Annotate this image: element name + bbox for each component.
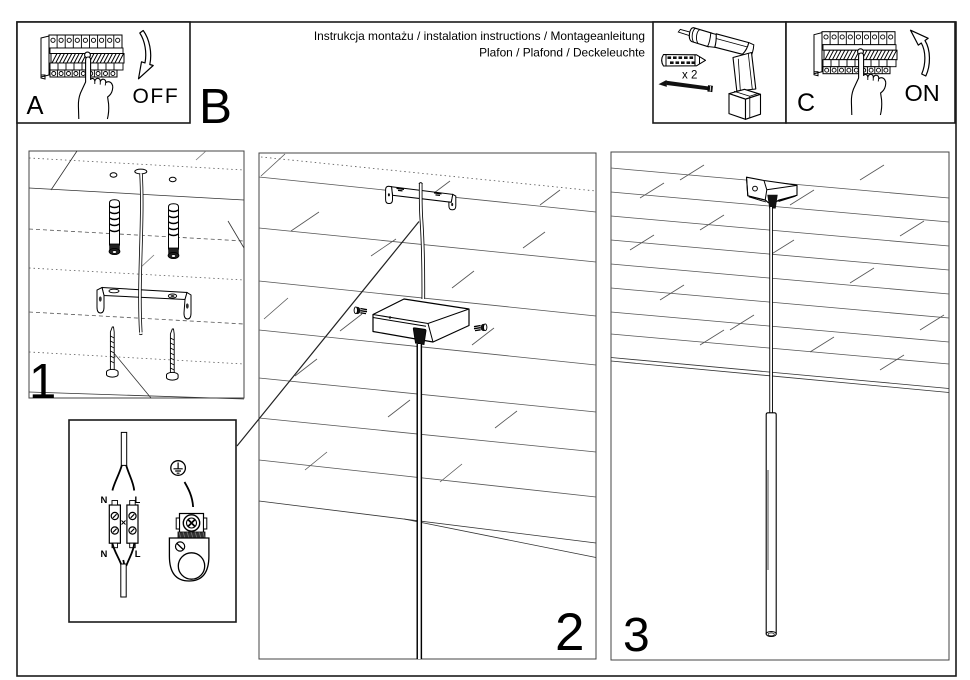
svg-text:C: C bbox=[797, 89, 815, 117]
svg-text:x 2: x 2 bbox=[682, 70, 697, 82]
svg-text:ON: ON bbox=[905, 80, 940, 106]
svg-text:N: N bbox=[101, 495, 108, 506]
svg-text:A: A bbox=[27, 92, 44, 120]
svg-text:B: B bbox=[199, 79, 232, 134]
svg-text:N: N bbox=[101, 549, 108, 560]
svg-text:Plafon / Plafond / Deckeleucht: Plafon / Plafond / Deckeleuchte bbox=[479, 45, 645, 59]
svg-text:OFF: OFF bbox=[133, 85, 180, 108]
svg-text:2: 2 bbox=[555, 603, 584, 662]
svg-text:1: 1 bbox=[29, 355, 56, 409]
svg-text:3: 3 bbox=[623, 609, 650, 662]
svg-text:Instrukcja montażu / instalati: Instrukcja montażu / instalation instruc… bbox=[314, 29, 645, 43]
svg-text:L: L bbox=[135, 495, 141, 506]
svg-text:L: L bbox=[135, 549, 141, 560]
